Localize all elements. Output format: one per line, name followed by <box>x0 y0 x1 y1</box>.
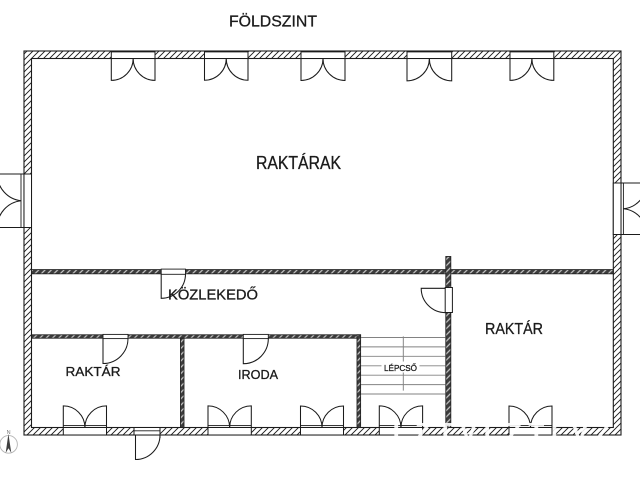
svg-text:RAKTÁR: RAKTÁR <box>485 321 543 338</box>
svg-text:IRODA: IRODA <box>238 367 278 382</box>
svg-text:LZTVLZTLVZ: LZTVLZTLVZ <box>393 417 618 447</box>
svg-text:FÖLDSZINT: FÖLDSZINT <box>229 13 317 31</box>
svg-text:KÖZLEKEDŐ: KÖZLEKEDŐ <box>168 285 258 303</box>
svg-text:RAKTÁR: RAKTÁR <box>66 364 121 379</box>
svg-text:LÉPCSŐ: LÉPCSŐ <box>384 363 417 373</box>
svg-text:RAKTÁRAK: RAKTÁRAK <box>256 152 342 173</box>
svg-text:N: N <box>7 430 11 436</box>
